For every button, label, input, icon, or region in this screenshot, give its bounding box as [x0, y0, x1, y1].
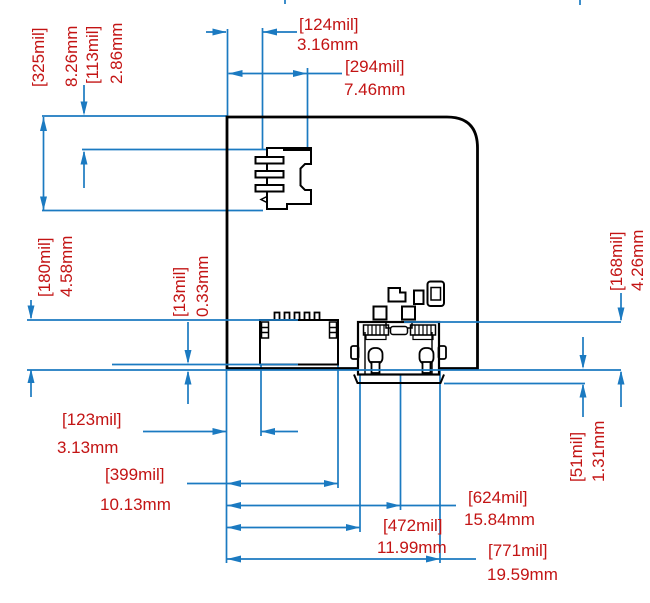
dim-294-mil-label: [294mil] — [345, 57, 405, 76]
dim-399-mil-label: [399mil] — [105, 465, 165, 484]
fpc-pin — [295, 313, 300, 321]
dim-472-mm-label: 11.99mm — [377, 538, 447, 557]
dim-294-mm-label: 7.46mm — [344, 80, 405, 99]
component-tall — [428, 282, 445, 307]
dim-180-mil-label: [180mil] — [35, 237, 54, 297]
dim-624-mil-label: [624mil] — [468, 488, 528, 507]
arrowhead — [40, 197, 47, 211]
dim-472-mil-label: [472mil] — [383, 516, 443, 535]
arrowhead — [293, 70, 307, 77]
dim-771-mil-label: [771mil] — [488, 541, 548, 560]
arrowhead — [227, 480, 241, 487]
arrowhead — [227, 524, 241, 531]
component-notched — [389, 288, 406, 302]
dim-123-mm-label: 3.13mm — [57, 438, 118, 457]
pcb-dimension-drawing: [124mil] 3.16mm [294mil] 7.46mm [123mil]… — [0, 0, 650, 603]
dim-771-mm-label: 19.59mm — [487, 565, 558, 584]
arrowhead — [227, 556, 241, 563]
dim-325-mm-label: 8.26mm — [62, 26, 81, 87]
arrowhead — [387, 502, 401, 509]
dim-123-mil-label: [123mil] — [62, 410, 122, 429]
arrowhead — [213, 29, 227, 36]
dim-113-mm-label: 2.86mm — [107, 23, 126, 84]
small-components — [374, 282, 445, 320]
arrowhead — [213, 428, 227, 435]
arrowhead — [580, 355, 587, 369]
dim-124-mil-label: [124mil] — [299, 15, 359, 34]
dim-113-mil-label: [113mil] — [83, 26, 102, 84]
arrowhead — [227, 502, 241, 509]
arrowhead — [324, 480, 338, 487]
microsd-contact-finger — [256, 157, 284, 164]
fpc-pin — [285, 313, 290, 321]
fpc-pin — [275, 313, 280, 321]
dim-13-mil-label: [13mil] — [170, 267, 189, 317]
dim-51-mil-label: [51mil] — [567, 432, 586, 482]
arrowhead — [40, 117, 47, 131]
dim-624-mm-label: 15.84mm — [464, 510, 535, 529]
arrowhead — [346, 524, 360, 531]
usb-post-right-base — [423, 362, 431, 373]
dim-168-mm-label: 4.26mm — [628, 230, 647, 291]
dimension-labels: [124mil] 3.16mm [294mil] 7.46mm [123mil]… — [29, 15, 647, 584]
component-pad — [374, 307, 387, 320]
arrowhead — [81, 151, 88, 165]
dim-51-mm-label: 1.31mm — [589, 421, 608, 482]
arrowhead — [81, 102, 88, 116]
dim-180-mm-label: 4.58mm — [57, 236, 76, 297]
component-pad — [414, 291, 424, 305]
dim-399-mm-label: 10.13mm — [100, 495, 171, 514]
microsd-contact-finger — [256, 171, 284, 178]
arrowhead — [261, 428, 275, 435]
arrowhead — [618, 308, 625, 322]
dim-168-mil-label: [168mil] — [607, 231, 626, 291]
arrowhead — [580, 384, 587, 398]
arrowhead — [185, 371, 192, 385]
arrowhead — [229, 70, 243, 77]
drawing-svg: [124mil] 3.16mm [294mil] 7.46mm [123mil]… — [0, 0, 650, 603]
arrowhead — [263, 29, 277, 36]
dim-124-mm-label: 3.16mm — [297, 35, 358, 54]
usb-post-left-base — [372, 362, 380, 373]
usb-bottom-lip — [354, 375, 444, 384]
dim-325-mil-label: [325mil] — [29, 27, 48, 87]
arrowhead — [185, 350, 192, 364]
usb-center-tab — [391, 327, 408, 335]
fpc-pin — [305, 313, 310, 321]
microusb-connector-footprint — [351, 322, 446, 383]
microsd-connector-footprint — [256, 148, 312, 209]
board-and-components — [227, 117, 478, 383]
fpc-body — [260, 320, 338, 365]
arrowhead — [28, 306, 35, 320]
microsd-contact-finger — [256, 185, 284, 192]
dim-13-mm-label: 0.33mm — [193, 256, 212, 317]
fpc-pin — [315, 313, 320, 321]
arrowhead — [618, 371, 625, 385]
arrowhead — [28, 369, 35, 383]
component-pad — [402, 307, 415, 320]
